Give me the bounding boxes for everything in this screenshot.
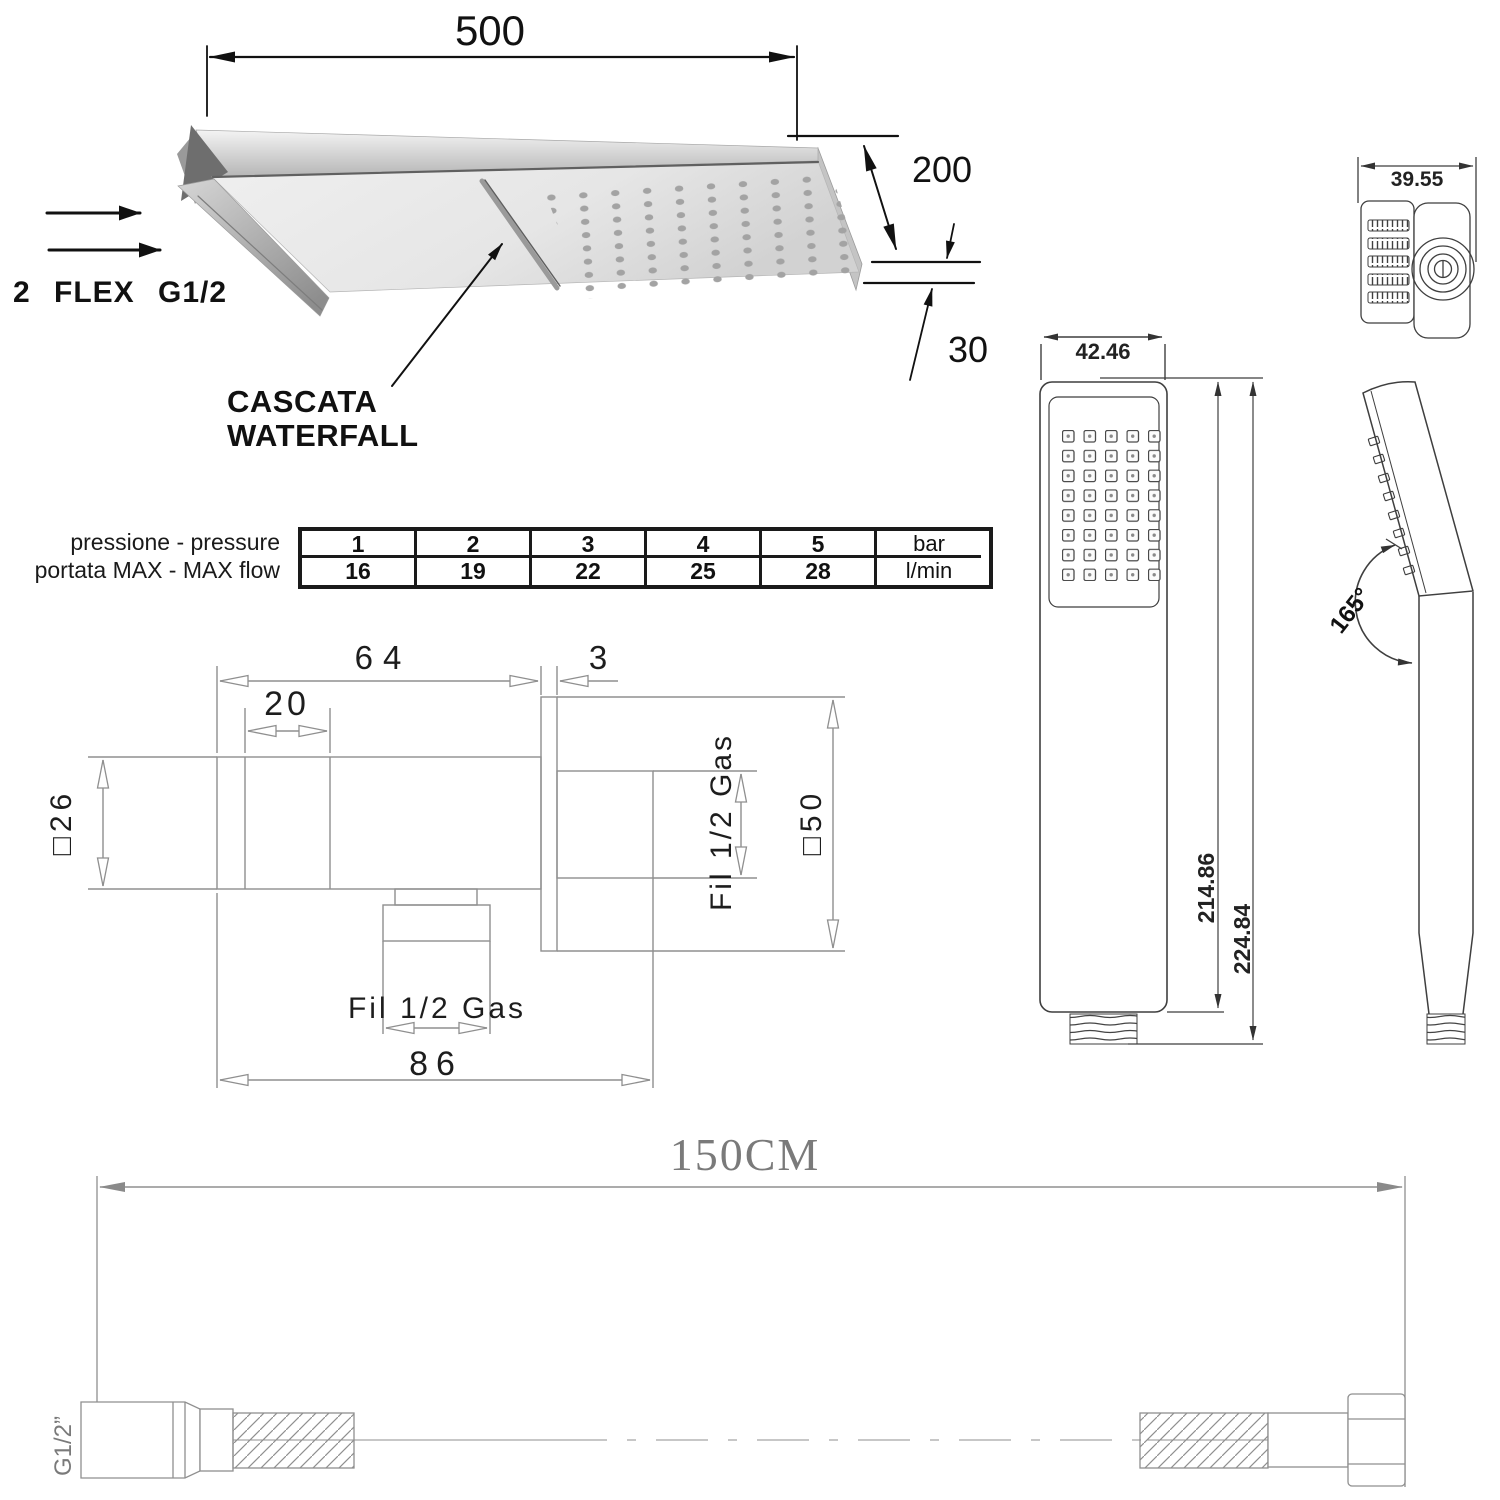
table-cell: 22 bbox=[532, 558, 647, 585]
hose-right-nut bbox=[1348, 1394, 1405, 1486]
dim-21486-label: 214.86 bbox=[1193, 828, 1219, 948]
dim-200-label: 200 bbox=[897, 150, 987, 190]
union-body-front bbox=[557, 771, 653, 878]
table-row-pressure: 1 2 3 4 5 bar bbox=[302, 531, 989, 558]
dim-fil-gas-side-label: Fil 1/2 Gas bbox=[705, 722, 739, 922]
union-body-side bbox=[217, 757, 541, 889]
table-row2-label: portata MAX - MAX flow bbox=[0, 556, 280, 584]
drawing-linework bbox=[0, 0, 1500, 1500]
waterfall-label: WATERFALL bbox=[227, 419, 419, 453]
dim-4246-label: 42.46 bbox=[1053, 340, 1153, 364]
union-outlet-neck bbox=[395, 889, 477, 905]
hose-left-fitting bbox=[81, 1402, 200, 1478]
union-wall-plate bbox=[541, 697, 557, 951]
hose-g12-label: G1/2” bbox=[50, 1381, 78, 1500]
dim-64-label: 64 bbox=[338, 640, 428, 676]
table-cell: 19 bbox=[417, 558, 532, 585]
dim-86-label: 86 bbox=[386, 1046, 486, 1083]
dim-sq50-label: □50 bbox=[795, 752, 829, 892]
dim-30-label: 30 bbox=[933, 330, 1003, 370]
table-cell: 1 bbox=[302, 531, 417, 558]
hose-right-thread bbox=[1140, 1413, 1268, 1468]
table-cell: 3 bbox=[532, 531, 647, 558]
cascata-label: CASCATA bbox=[227, 385, 377, 419]
table-cell: 5 bbox=[762, 531, 877, 558]
dim-500-label: 500 bbox=[410, 8, 570, 54]
table-cell: 16 bbox=[302, 558, 417, 585]
handshower-side-handle bbox=[1419, 596, 1429, 1014]
technical-drawing-sheet: 500 200 30 2 FLEX G1/2 CASCATA WATERFALL… bbox=[0, 0, 1500, 1500]
dim-150cm-label: 150CM bbox=[620, 1130, 870, 1181]
dim-22484-label: 224.84 bbox=[1229, 879, 1255, 999]
table-row1-label: pressione - pressure bbox=[0, 528, 280, 556]
table-cell-unit: bar bbox=[877, 531, 981, 558]
table-cell: 2 bbox=[417, 531, 532, 558]
dim-3955-label: 39.55 bbox=[1372, 168, 1462, 191]
table-row-flow: 16 19 22 25 28 l/min bbox=[302, 558, 989, 585]
handshower-side-view bbox=[1355, 382, 1473, 1044]
inlet-flex-label: 2 FLEX G1/2 bbox=[13, 276, 227, 309]
table-cell: 28 bbox=[762, 558, 877, 585]
dim-20-label: 20 bbox=[247, 686, 327, 723]
dim-sq26-label: □26 bbox=[45, 752, 79, 892]
dim-3-label: 3 bbox=[578, 640, 618, 676]
hose-left-thread bbox=[233, 1413, 354, 1468]
hose-view bbox=[81, 1176, 1405, 1487]
union-outlet-block bbox=[383, 905, 490, 941]
table-cell: 25 bbox=[647, 558, 762, 585]
handshower-top-swivel bbox=[1414, 203, 1470, 338]
handshower-front-thread bbox=[1070, 1014, 1137, 1044]
waterfall-head-view bbox=[47, 46, 980, 386]
table-cell-unit: l/min bbox=[877, 558, 981, 585]
pressure-flow-table: 1 2 3 4 5 bar 16 19 22 25 28 l/min bbox=[298, 527, 993, 589]
dim-fil-gas-bottom-label: Fil 1/2 Gas bbox=[327, 992, 547, 1025]
handshower-side-thread bbox=[1427, 1014, 1465, 1044]
handshower-front-nozzles bbox=[1061, 429, 1166, 581]
table-cell: 4 bbox=[647, 531, 762, 558]
